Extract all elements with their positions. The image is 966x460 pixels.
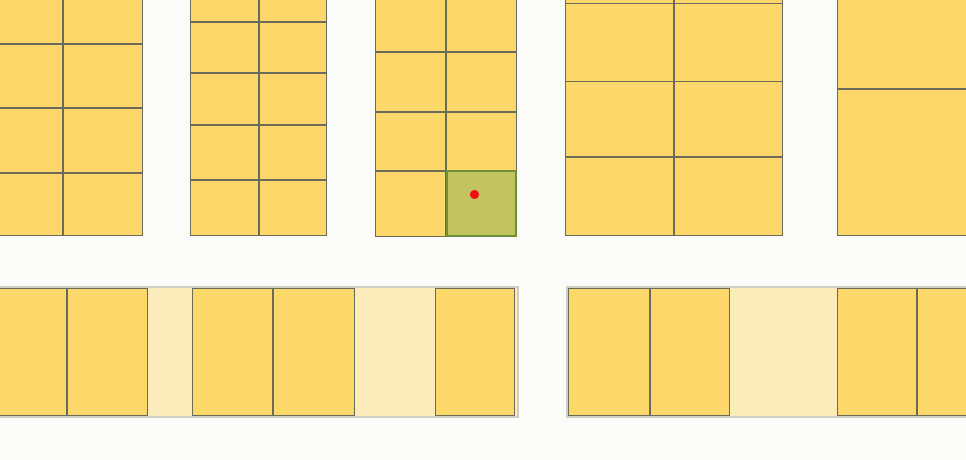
parcel[interactable] (675, 0, 782, 3)
parcel[interactable] (376, 113, 445, 170)
parcel[interactable] (191, 23, 258, 72)
parcel[interactable] (191, 0, 258, 21)
parcel[interactable] (566, 82, 673, 156)
parcel[interactable] (64, 0, 142, 43)
parcel[interactable] (191, 74, 258, 124)
parcel[interactable] (0, 0, 62, 43)
parcel[interactable] (435, 288, 515, 416)
parcel[interactable] (260, 0, 326, 21)
parcel-block (565, 0, 783, 236)
parcel[interactable] (64, 45, 142, 107)
parcel[interactable] (260, 74, 326, 124)
parcel-block (0, 0, 143, 236)
parcel[interactable] (260, 126, 326, 179)
map-marker-dot-icon (470, 190, 479, 199)
parcel[interactable] (64, 174, 142, 235)
parcel[interactable] (838, 90, 966, 235)
parcel[interactable] (67, 288, 148, 416)
parcel[interactable] (376, 53, 445, 111)
parcel[interactable] (191, 181, 258, 235)
parcel[interactable] (0, 288, 67, 416)
parcel[interactable] (917, 288, 966, 416)
parcel[interactable] (0, 45, 62, 107)
parcel[interactable] (838, 0, 966, 88)
parcel[interactable] (447, 113, 516, 170)
parcel[interactable] (376, 0, 445, 51)
parcel[interactable] (447, 53, 516, 111)
parcel[interactable] (64, 109, 142, 172)
parcel[interactable] (650, 288, 730, 416)
selected-parcel[interactable] (446, 170, 517, 237)
parcel[interactable] (566, 4, 673, 80)
parcel-block (837, 0, 966, 236)
parcel[interactable] (0, 109, 62, 172)
parcel[interactable] (447, 0, 516, 51)
parcel[interactable] (675, 158, 782, 235)
parcel[interactable] (675, 4, 782, 80)
parcel[interactable] (260, 23, 326, 72)
parcel[interactable] (376, 172, 445, 236)
parcel[interactable] (675, 82, 782, 156)
parcel-block (190, 0, 327, 236)
parcel[interactable] (0, 174, 62, 235)
parcel[interactable] (566, 158, 673, 235)
parcel[interactable] (837, 288, 917, 416)
parcel[interactable] (568, 288, 650, 416)
parcel[interactable] (273, 288, 355, 416)
parcel[interactable] (260, 181, 326, 235)
parcel[interactable] (192, 288, 273, 416)
parcel[interactable] (191, 126, 258, 179)
parcel[interactable] (566, 0, 673, 3)
map-canvas[interactable] (0, 0, 966, 460)
